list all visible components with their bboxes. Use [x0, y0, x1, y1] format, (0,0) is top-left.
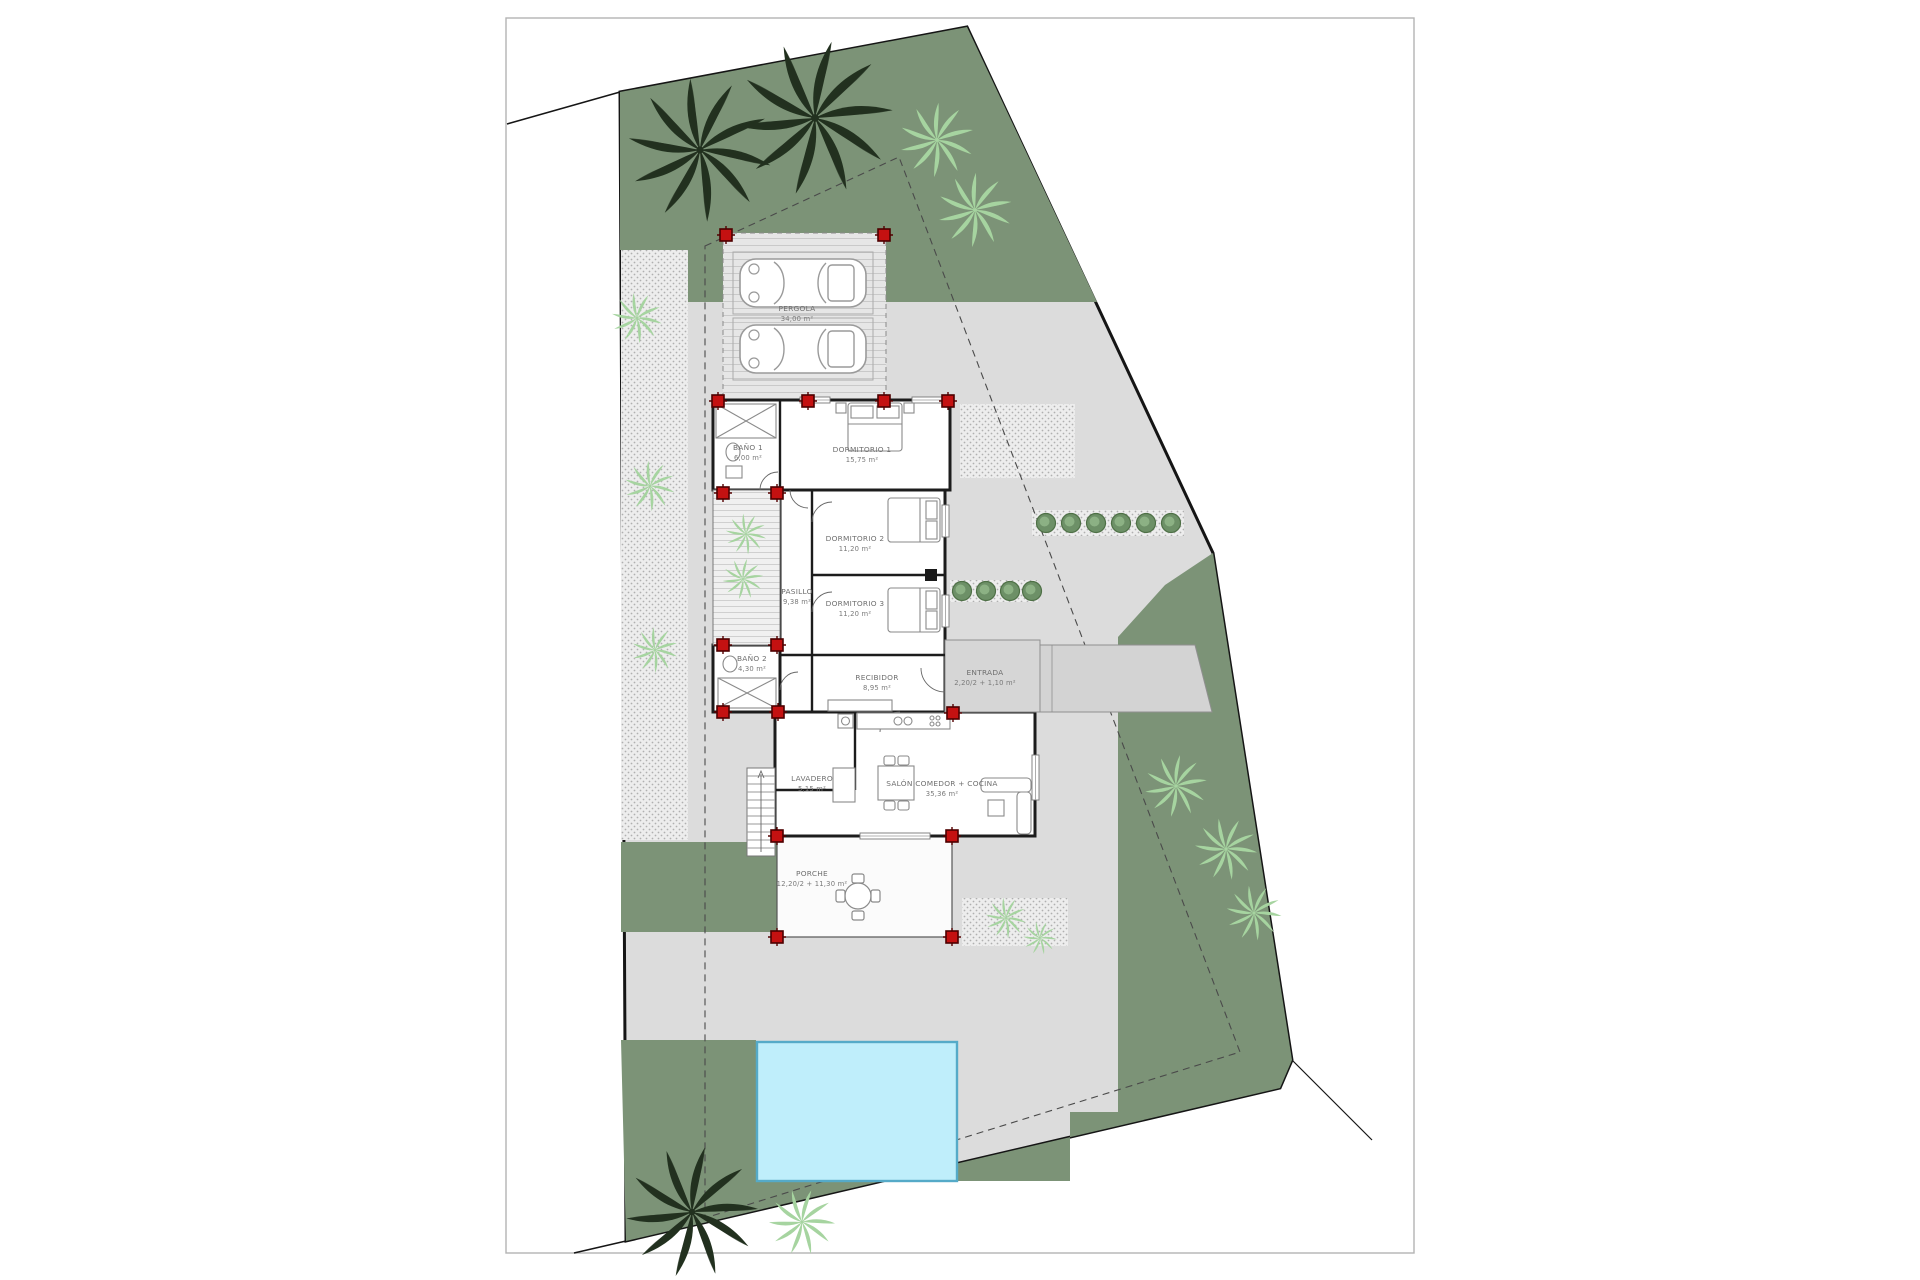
bush-icon [1037, 514, 1056, 533]
swimming-pool [757, 1042, 957, 1181]
room-area-lavadero: 5,15 m² [798, 785, 826, 793]
room-label-dormitorio2: DORMITORIO 2 [826, 534, 885, 543]
boundary-stub-left [507, 92, 620, 124]
entrance-walkway [1040, 645, 1212, 712]
bush-icon [1137, 514, 1156, 533]
room-area-dormitorio3: 11,20 m² [839, 610, 872, 618]
room-area-bano2: 4,30 m² [738, 665, 766, 673]
room-label-lavadero: LAVADERO [791, 774, 833, 783]
red-column-icon [875, 392, 893, 410]
room-label-pasillo: PASILLO [781, 587, 812, 596]
room-area-entrada: 2,20/2 + 1,10 m² [954, 679, 1016, 687]
boundary-stub-bottom [574, 1241, 626, 1253]
kitchen-counter [857, 713, 950, 729]
room-area-pergola: 34,00 m² [781, 315, 814, 323]
bush-icon [977, 582, 996, 601]
car-icon [740, 259, 866, 307]
room-area-bano1: 6,00 m² [734, 454, 762, 462]
red-column-icon [714, 484, 732, 502]
sink-icon [726, 466, 742, 478]
bush-icon [1112, 514, 1131, 533]
car-icon [740, 325, 866, 373]
room-label-entrada: ENTRADA [967, 668, 1004, 677]
bed-icon [888, 498, 940, 542]
site-plan-page: PERGOLA 34,00 m² BAÑO 1 6,00 m² DORMITOR… [0, 0, 1920, 1280]
room-area-dormitorio1: 15,75 m² [846, 456, 879, 464]
red-column-icon [943, 827, 961, 845]
red-column-icon [768, 928, 786, 946]
red-column-icon [799, 392, 817, 410]
red-column-icon [768, 484, 786, 502]
red-column-icon [709, 392, 727, 410]
bed-icon [888, 588, 940, 632]
red-column-icon [943, 928, 961, 946]
bed-icon [836, 403, 914, 451]
bush-icon [1023, 582, 1042, 601]
room-area-pasillo: 9,38 m² [783, 598, 811, 606]
red-column-icon [714, 636, 732, 654]
red-column-icon [714, 703, 732, 721]
kitchen-island [833, 768, 855, 802]
room-label-bano1: BAÑO 1 [733, 443, 763, 452]
cabinet-icon [828, 700, 892, 711]
room-label-pergola: PERGOLA [779, 304, 816, 313]
bush-icon [1001, 582, 1020, 601]
bush-icon [1162, 514, 1181, 533]
room-label-porche: PORCHE [796, 869, 828, 878]
washer-icon [838, 714, 853, 728]
red-column-icon [768, 827, 786, 845]
room-label-dormitorio3: DORMITORIO 3 [826, 599, 885, 608]
toilet-icon [723, 656, 737, 672]
room-area-recibidor: 8,95 m² [863, 684, 891, 692]
bush-icon [1087, 514, 1106, 533]
courtyard-deck [713, 490, 780, 645]
bush-icon [1062, 514, 1081, 533]
gravel-strip-left [621, 250, 688, 840]
shower-icon [716, 404, 776, 438]
red-column-icon [939, 392, 957, 410]
black-column-icon [925, 569, 937, 581]
red-column-icon [875, 226, 893, 244]
room-label-bano2: BAÑO 2 [737, 654, 767, 663]
room-label-recibidor: RECIBIDOR [855, 673, 898, 682]
room-area-salon: 35,36 m² [926, 790, 959, 798]
red-column-icon [944, 704, 962, 722]
red-column-icon [717, 226, 735, 244]
room-area-porche: 12,20/2 + 11,30 m² [777, 880, 848, 888]
boundary-stub-right [1292, 1060, 1372, 1140]
room-area-dormitorio2: 11,20 m² [839, 545, 872, 553]
red-column-icon [769, 703, 787, 721]
room-label-salon: SALÓN COMEDOR + COCINA [886, 779, 997, 788]
site-plan-drawing: PERGOLA 34,00 m² BAÑO 1 6,00 m² DORMITOR… [0, 0, 1920, 1280]
red-column-icon [768, 636, 786, 654]
room-label-dormitorio1: DORMITORIO 1 [833, 445, 892, 454]
bush-icon [953, 582, 972, 601]
shower-icon [718, 678, 776, 708]
